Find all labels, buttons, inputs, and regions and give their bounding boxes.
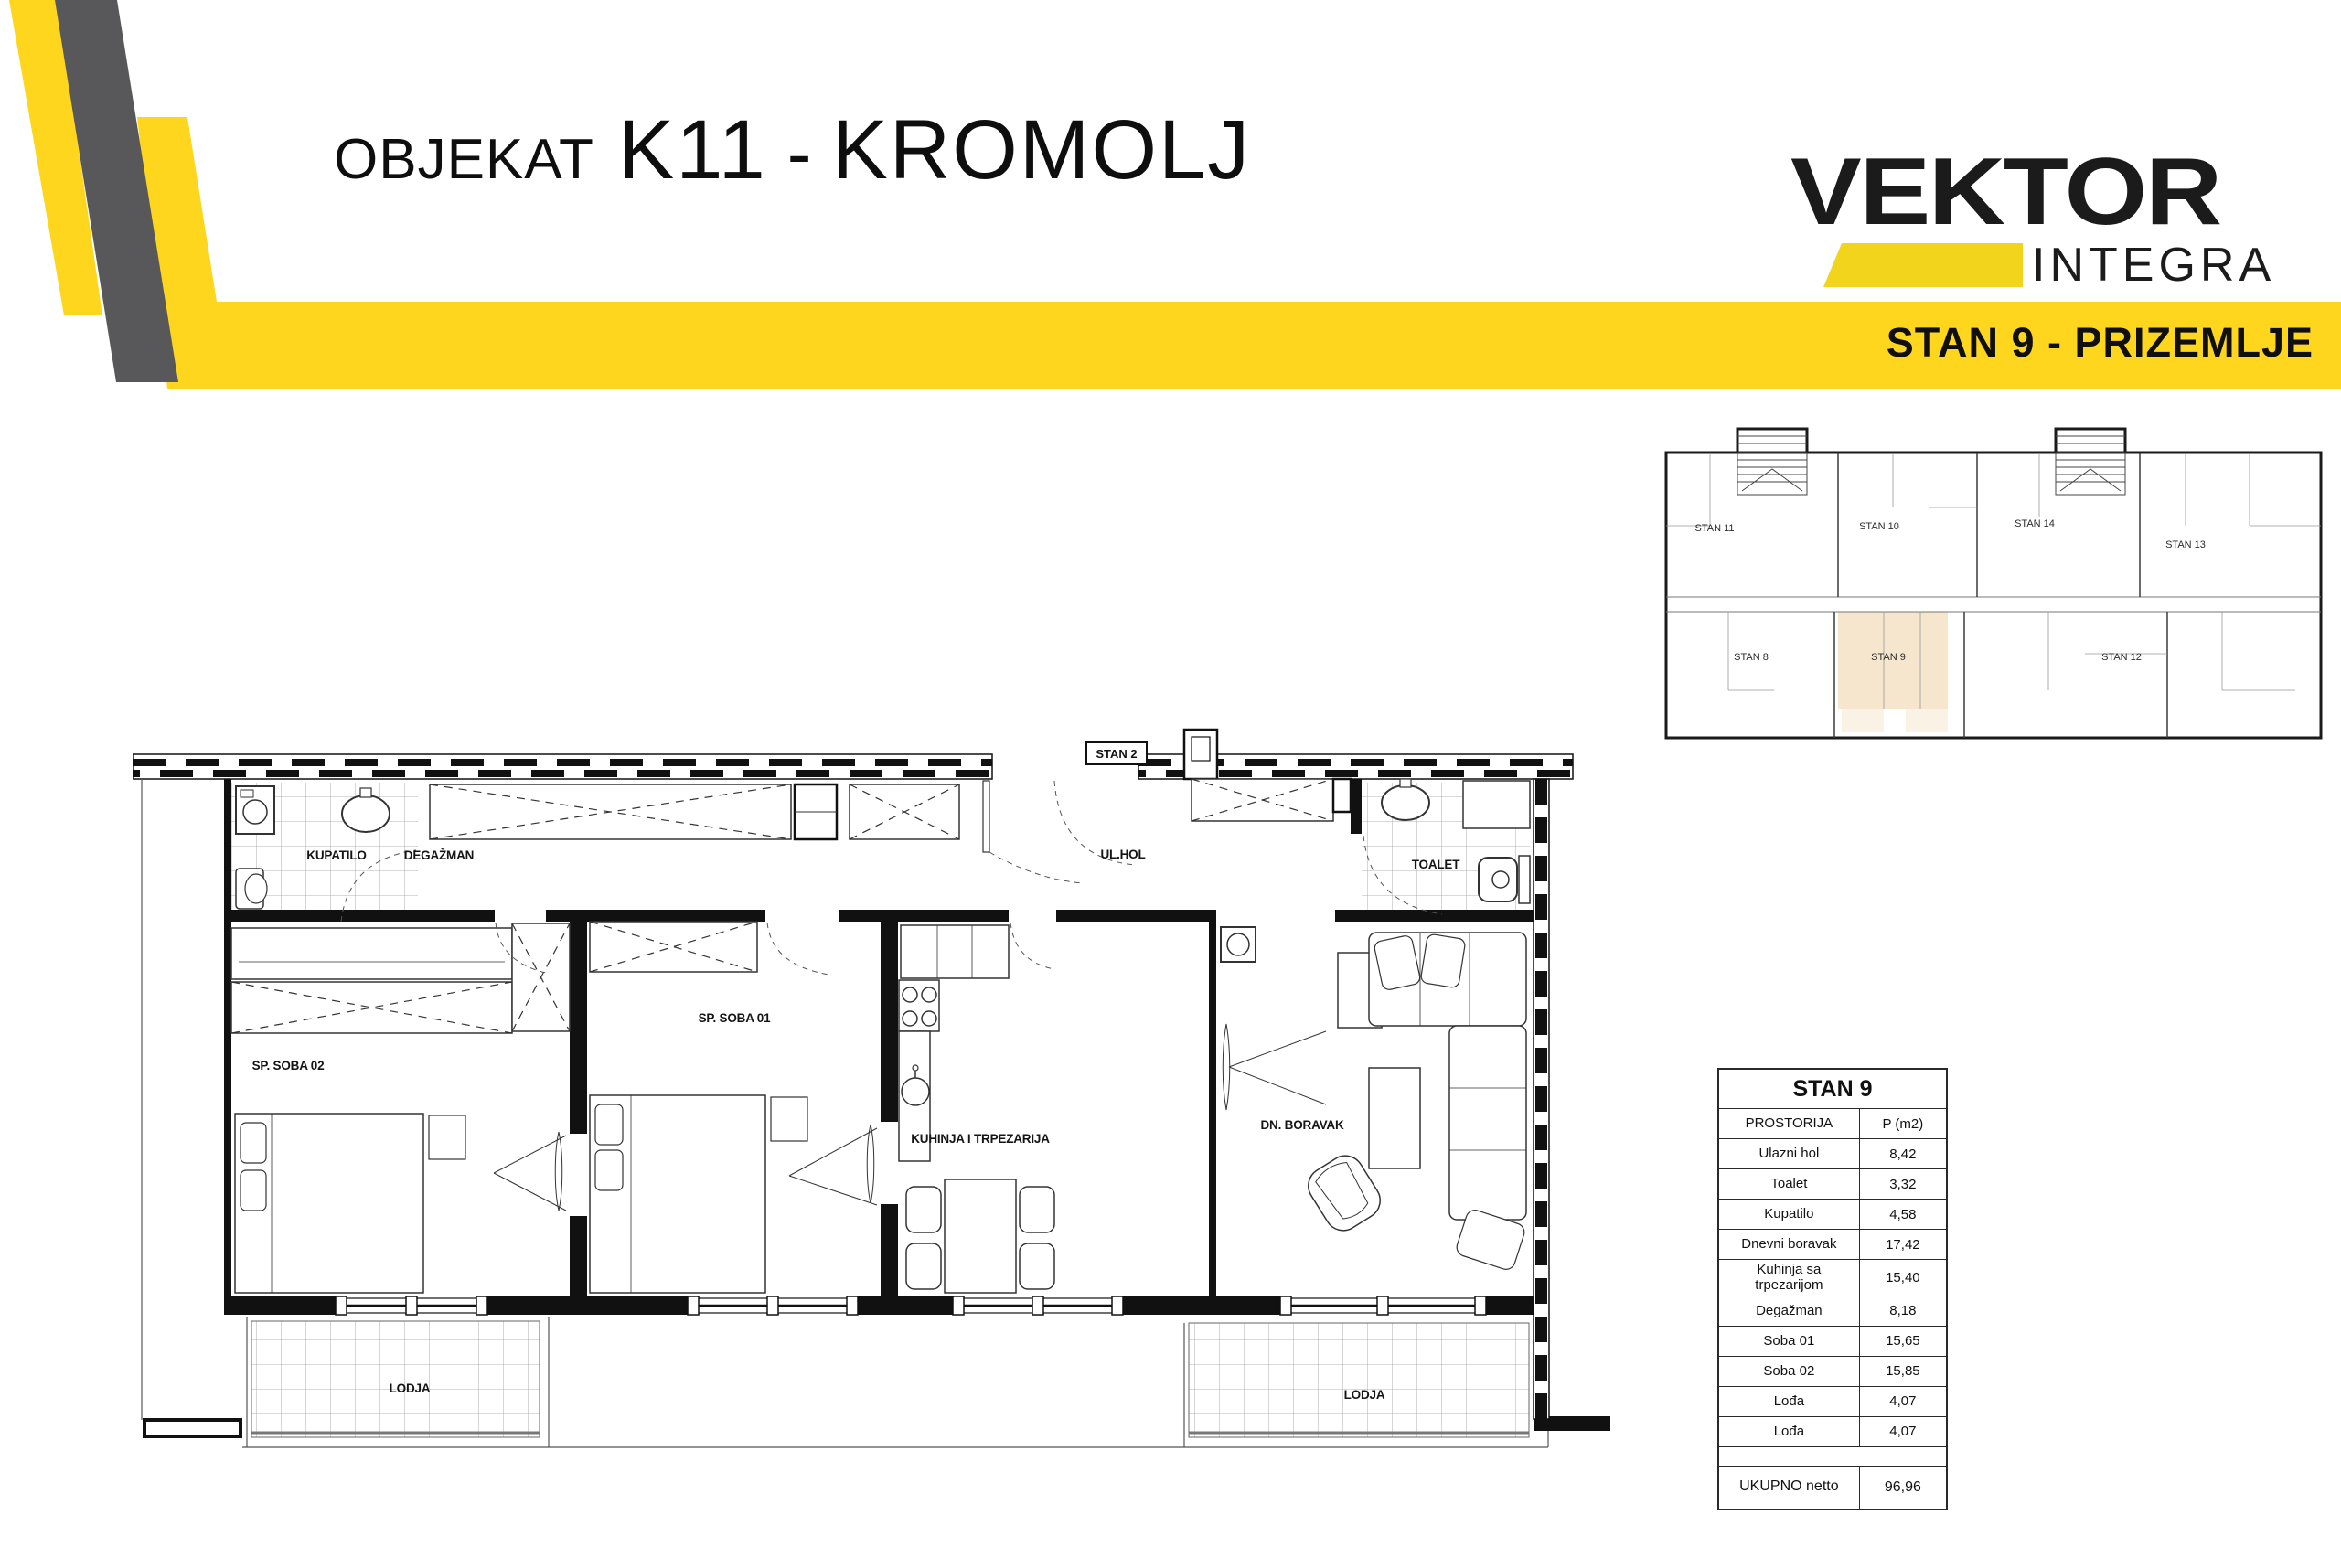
overview-label-stan13: STAN 13: [2165, 539, 2206, 550]
soba02-furniture: [231, 923, 570, 1293]
room-label-kupatilo: KUPATILO: [306, 848, 366, 862]
living-furniture: [1221, 927, 1526, 1272]
soba02-nightstand: [429, 1115, 465, 1159]
room-area: 15,85: [1860, 1357, 1946, 1386]
hall-wardrobe: [1192, 779, 1351, 821]
room-name: Toalet: [1719, 1169, 1860, 1199]
soba02-wardrobe: [231, 982, 512, 1033]
room-area: 17,42: [1860, 1230, 1946, 1259]
room-name: Degažman: [1719, 1296, 1860, 1326]
parapet-wall: [144, 1420, 241, 1436]
room-label-degazman: DEGAŽMAN: [404, 848, 474, 862]
overview-label-stan8: STAN 8: [1734, 652, 1769, 663]
col-header-area: P (m2): [1860, 1109, 1946, 1138]
area-table-header: PROSTORIJA P (m2): [1719, 1109, 1946, 1139]
room-name: Soba 01: [1719, 1327, 1860, 1356]
room-name: Lođa: [1719, 1417, 1860, 1446]
sink: [342, 795, 390, 832]
table-row: Dnevni boravak 17,42: [1719, 1230, 1946, 1260]
overview-room-lines: [1666, 453, 2321, 709]
total-label: UKUPNO netto: [1719, 1467, 1860, 1509]
top-wall-band: [133, 754, 1573, 779]
logo-brand-text: VEKTOR: [1790, 144, 2341, 240]
room-name: Soba 02: [1719, 1357, 1860, 1386]
overview-label-stan10: STAN 10: [1859, 521, 1899, 532]
overview-label-stan9: STAN 9: [1871, 652, 1906, 663]
soba01-entry-arc: [767, 923, 829, 975]
neighbor-unit-tag: STAN 2: [1086, 742, 1147, 764]
soba01-furniture: [590, 922, 807, 1293]
right-outer-wall: [1534, 779, 1549, 1419]
area-table-title: STAN 9: [1719, 1070, 1946, 1109]
table-row: Toalet 3,32: [1719, 1169, 1946, 1200]
room-label-boravak: DN. BORAVAK: [1260, 1118, 1343, 1132]
banner-unit-label: STAN 9 - PRIZEMLJE: [1887, 319, 2314, 367]
table-row: Kupatilo 4,58: [1719, 1200, 1946, 1230]
soba02-closet: [231, 928, 512, 979]
overview-label-stan14: STAN 14: [2015, 518, 2055, 529]
stair-core-right: [2056, 436, 2125, 495]
toalet-cabinet: [1463, 781, 1530, 828]
highlight-stan9-lodja-right: [1906, 709, 1948, 732]
table-spacer-row: [1719, 1447, 1946, 1467]
logo-bottom-row: INTEGRA: [1823, 241, 2303, 289]
col-header-room: PROSTORIJA: [1719, 1109, 1860, 1138]
room-area: 15,65: [1860, 1327, 1946, 1356]
neighbor-unit-label: STAN 2: [1096, 747, 1137, 761]
shaft: [1184, 730, 1217, 779]
room-area: 15,40: [1860, 1260, 1946, 1296]
room-area: 4,07: [1860, 1387, 1946, 1416]
room-area: 3,32: [1860, 1169, 1946, 1199]
table-total-row: UKUPNO netto 96,96: [1719, 1467, 1946, 1509]
room-name: Kupatilo: [1719, 1200, 1860, 1229]
room-label-ulhol: UL.HOL: [1100, 848, 1145, 861]
room-name: Lođa: [1719, 1387, 1860, 1416]
kitchen-counter-top: [901, 925, 1009, 978]
room-label-kuhinja: KUHINJA I TRPEZARIJA: [911, 1132, 1050, 1146]
title-prefix: OBJEKAT: [334, 127, 594, 192]
sofa-vertical: [1449, 1026, 1526, 1220]
lodja-right: LODJA: [1189, 1323, 1529, 1437]
table-row: Lođa 4,07: [1719, 1417, 1946, 1447]
soba01-nightstand: [771, 1097, 807, 1141]
room-name: Dnevni boravak: [1719, 1230, 1860, 1259]
table-row: Soba 01 15,65: [1719, 1327, 1946, 1357]
overview-corridor: [1666, 597, 2321, 612]
highlight-stan9-lodja-left: [1842, 709, 1884, 732]
hall-door-leaf: [983, 781, 989, 852]
overview-label-stan11: STAN 11: [1695, 523, 1735, 534]
room-area: 4,58: [1860, 1200, 1946, 1229]
kitchen-furniture: [899, 925, 1054, 1293]
room-label-soba02: SP. SOBA 02: [252, 1059, 325, 1072]
table-row: Soba 02 15,85: [1719, 1357, 1946, 1387]
room-label-lodja-left: LODJA: [390, 1381, 431, 1395]
logo-sub-text: INTEGRA: [2032, 241, 2275, 289]
coffee-table: [1369, 1068, 1420, 1168]
title-code: K11: [618, 102, 767, 198]
table-row: Ulazni hol 8,42: [1719, 1139, 1946, 1169]
room-name: Ulazni hol: [1719, 1139, 1860, 1168]
building-overview-plan: STAN 11 STAN 10 STAN 14 STAN 13 STAN 8 S…: [1655, 416, 2336, 763]
room-area: 8,18: [1860, 1296, 1946, 1326]
table-row: Lođa 4,07: [1719, 1387, 1946, 1417]
page: OBJEKAT K11 - KROMOLJ VEKTOR INTEGRA STA…: [0, 0, 2341, 1568]
room-label-lodja-right: LODJA: [1344, 1388, 1385, 1402]
room-label-toalet: TOALET: [1412, 858, 1461, 871]
toalet-sink: [1382, 785, 1429, 820]
kitchen-sink: [902, 1078, 929, 1105]
soba02-door: [494, 1132, 566, 1211]
room-area: 8,42: [1860, 1139, 1946, 1168]
title-separator: -: [787, 112, 812, 196]
total-value: 96,96: [1860, 1467, 1946, 1509]
brand-logo: VEKTOR INTEGRA: [1790, 144, 2303, 289]
hall-door-arc: [989, 852, 1084, 883]
logo-yellow-bar: [1823, 243, 2023, 287]
page-title: OBJEKAT K11 - KROMOLJ: [334, 102, 1251, 198]
dining-table: [945, 1179, 1016, 1293]
apartment-floor-plan: STAN 2 LODJA LODJA: [133, 722, 1651, 1545]
degazman-wardrobes: [430, 784, 959, 839]
title-name: KROMOLJ: [831, 102, 1251, 198]
room-label-soba01: SP. SOBA 01: [699, 1011, 772, 1025]
toalet-wc-tank: [1519, 856, 1530, 903]
lodja-left: LODJA: [251, 1321, 540, 1437]
area-table: STAN 9 PROSTORIJA P (m2) Ulazni hol 8,42…: [1717, 1068, 1948, 1510]
room-name: Kuhinja sa trpezarijom: [1719, 1260, 1860, 1296]
tv: [1223, 1024, 1230, 1110]
overview-label-stan12: STAN 12: [2101, 652, 2142, 663]
kitchen-entry-arc: [1010, 923, 1054, 969]
table-row: Kuhinja sa trpezarijom 15,40: [1719, 1260, 1946, 1296]
room-area: 4,07: [1860, 1417, 1946, 1446]
table-row: Degažman 8,18: [1719, 1296, 1946, 1327]
stair-core-left: [1737, 436, 1807, 495]
